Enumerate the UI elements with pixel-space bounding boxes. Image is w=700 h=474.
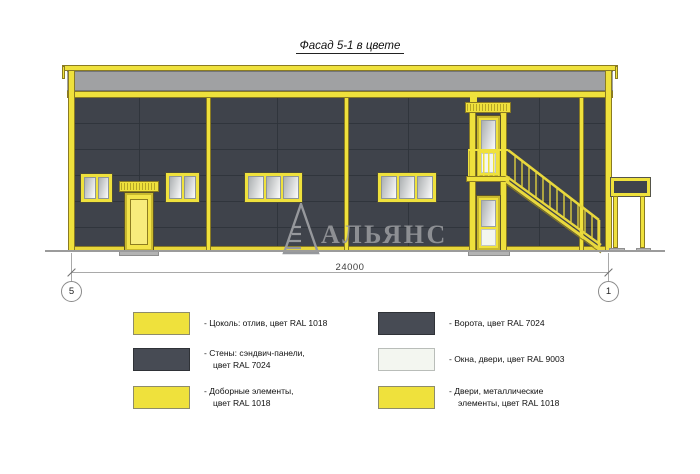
lower-exit-door (477, 196, 500, 250)
fascia-band (67, 91, 613, 98)
window (80, 173, 113, 203)
window-pane (98, 177, 110, 199)
watermark-text: АЛЬЯНС (321, 220, 448, 250)
door-lower-panel (481, 229, 496, 246)
door-glass (481, 120, 496, 151)
legend-item-metal-doors: - Двери, металлические элементы, цвет RA… (378, 386, 559, 409)
panel-joint (68, 123, 612, 124)
ground-line (45, 250, 665, 252)
corner-trim-left (68, 71, 75, 250)
drawing-title: Фасад 5-1 в цвете (296, 40, 405, 54)
legend-item-plinth: - Цоколь: отлив, цвет RAL 1018 (133, 312, 327, 335)
sign-post (640, 196, 645, 248)
tower-post (469, 182, 476, 250)
legend-swatch-ral1018 (133, 386, 190, 409)
legend-swatch-ral7024 (378, 312, 435, 335)
legend-item-trim-elements: - Доборные элементы, цвет RAL 1018 (133, 386, 293, 409)
dimension-label: 24000 (0, 262, 700, 273)
tower-canopy (465, 102, 511, 113)
entrance-canopy (119, 181, 159, 192)
window-pane (399, 176, 415, 199)
door-glass (481, 200, 496, 227)
legend-item-windows-doors: - Окна, двери, цвет RAL 9003 (378, 348, 564, 371)
title-container: Фасад 5-1 в цвете (0, 36, 700, 54)
legend-label: - Окна, двери, цвет RAL 9003 (449, 354, 564, 366)
legend-label: - Цоколь: отлив, цвет RAL 1018 (204, 318, 327, 330)
window (377, 172, 437, 203)
window-pane (283, 176, 299, 199)
axis-bubble-5: 5 (61, 281, 82, 302)
legend-swatch-ral9003 (378, 348, 435, 371)
window-pane (169, 176, 182, 199)
window-pane (84, 177, 96, 199)
legend-label: - Доборные элементы, цвет RAL 1018 (204, 386, 293, 409)
axis-bubble-1: 1 (598, 281, 619, 302)
entrance-door (125, 193, 153, 251)
legend-item-walls: - Стены: сэндвич-панели, цвет RAL 7024 (133, 348, 305, 371)
legend-swatch-ral1018 (378, 386, 435, 409)
window-pane (266, 176, 282, 199)
canopy-hatch (467, 104, 509, 111)
legend-swatch-ral1018 (133, 312, 190, 335)
window-pane (381, 176, 397, 199)
window (165, 172, 200, 203)
vertical-trim (206, 98, 211, 250)
canopy-hatch (121, 183, 157, 190)
window (244, 172, 303, 203)
signboard (611, 178, 650, 196)
window-pane (184, 176, 197, 199)
legend-label: - Двери, металлические элементы, цвет RA… (449, 386, 559, 409)
sign-post (613, 196, 618, 248)
window-pane (417, 176, 433, 199)
facade-drawing-sheet: Фасад 5-1 в цвете (0, 0, 700, 474)
roof-drip-left (62, 66, 65, 79)
legend-label: - Ворота, цвет RAL 7024 (449, 318, 545, 330)
alliance-triangle-logo-icon (282, 203, 320, 255)
parapet-band (67, 71, 613, 91)
roof-drip-right (615, 66, 618, 79)
legend-item-gates: - Ворота, цвет RAL 7024 (378, 312, 545, 335)
corner-trim-right (605, 71, 612, 250)
window-pane (248, 176, 264, 199)
legend-label: - Стены: сэндвич-панели, цвет RAL 7024 (204, 348, 305, 371)
door-panel (130, 199, 148, 245)
exterior-staircase (500, 145, 606, 257)
legend-swatch-ral7024 (133, 348, 190, 371)
